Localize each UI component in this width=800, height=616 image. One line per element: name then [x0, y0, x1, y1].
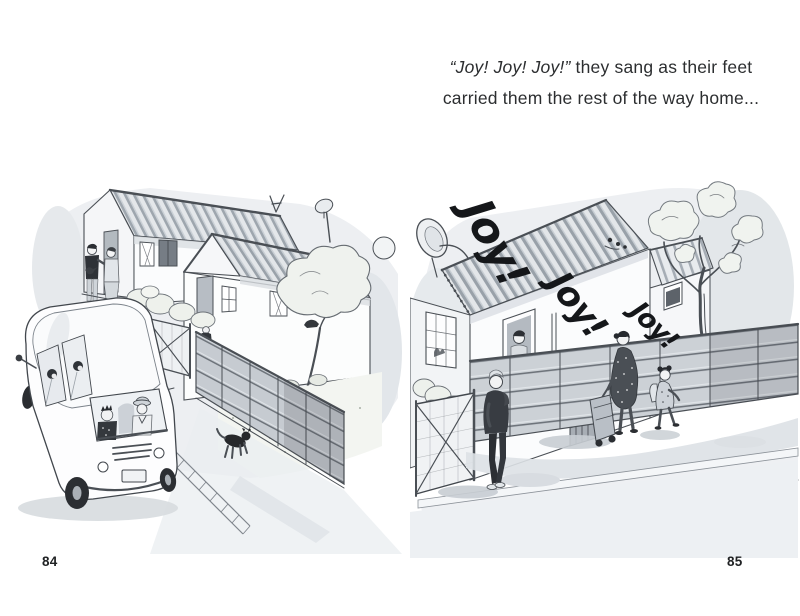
rear-house-window-dark [159, 240, 177, 266]
right-illustration: Joy! Joy! Joy! [410, 146, 800, 558]
mesh-gate [416, 390, 474, 496]
caption-quote: “Joy! Joy! Joy!” [450, 57, 571, 77]
caption: “Joy! Joy! Joy!” they sang as their feet… [410, 52, 792, 114]
front-house-window-1 [222, 286, 236, 312]
rear-house-window-curtain [140, 242, 154, 266]
caption-line1-rest: they sang as their feet [571, 57, 753, 77]
caption-line-1: “Joy! Joy! Joy!” they sang as their feet [410, 52, 792, 83]
front-passenger [132, 397, 152, 435]
left-illustration [0, 146, 402, 558]
page-number-right: 85 [727, 554, 743, 569]
book-spread: “Joy! Joy! Joy!” they sang as their feet… [0, 0, 800, 616]
page-number-left: 84 [42, 554, 58, 569]
caption-line-2: carried them the rest of the way home... [410, 83, 792, 114]
neighbor-dish-icon [373, 237, 395, 259]
minibus [16, 298, 178, 521]
left-facade-window [426, 312, 456, 368]
minibus-windshield [90, 389, 167, 441]
